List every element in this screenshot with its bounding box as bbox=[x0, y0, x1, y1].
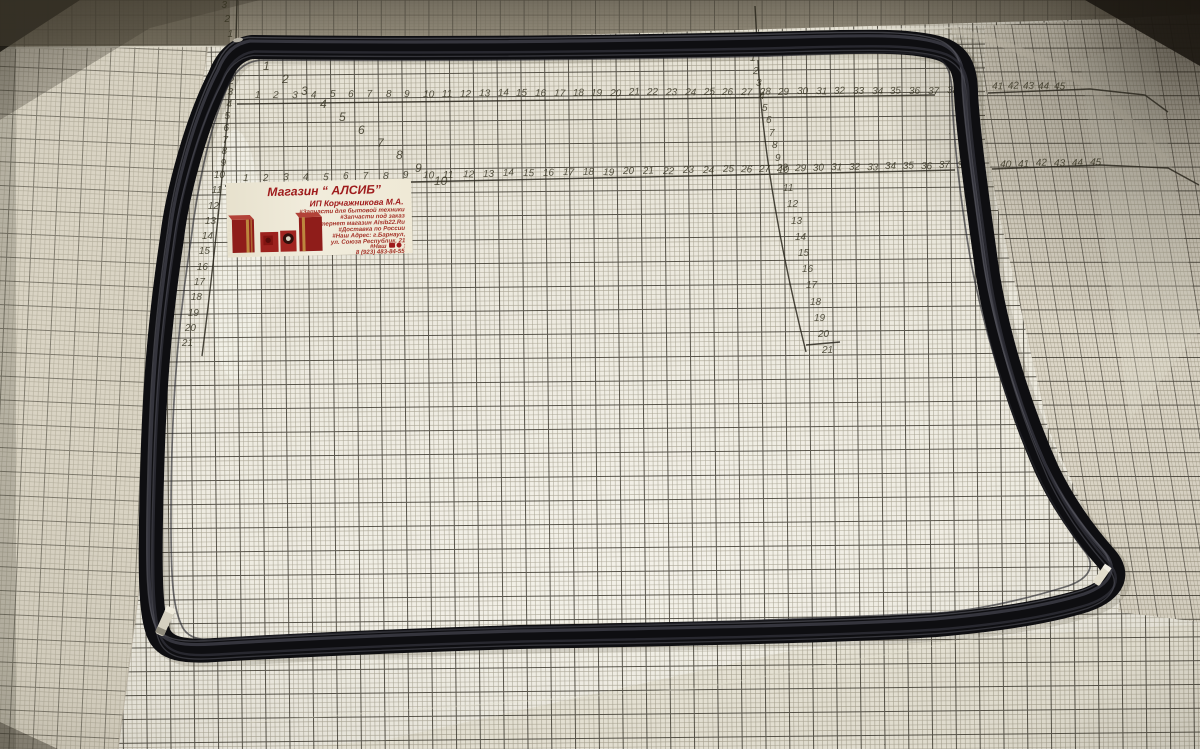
svg-text:13: 13 bbox=[791, 216, 803, 227]
svg-text:3: 3 bbox=[756, 78, 762, 89]
svg-text:6: 6 bbox=[348, 89, 354, 100]
svg-text:18: 18 bbox=[573, 88, 585, 99]
svg-text:37: 37 bbox=[939, 160, 951, 171]
svg-text:41: 41 bbox=[992, 81, 1004, 92]
svg-text:5: 5 bbox=[330, 89, 336, 100]
svg-text:6: 6 bbox=[358, 123, 365, 137]
svg-text:14: 14 bbox=[202, 231, 214, 242]
svg-text:15: 15 bbox=[516, 88, 528, 99]
svg-text:33: 33 bbox=[867, 162, 879, 174]
svg-text:40: 40 bbox=[1000, 159, 1012, 171]
svg-text:18: 18 bbox=[583, 167, 595, 178]
svg-text:5: 5 bbox=[762, 103, 768, 114]
svg-text:25: 25 bbox=[722, 164, 735, 175]
svg-text:19: 19 bbox=[591, 88, 603, 99]
svg-text:10: 10 bbox=[434, 174, 448, 188]
svg-text:2: 2 bbox=[752, 66, 759, 77]
svg-text:13: 13 bbox=[483, 169, 495, 180]
svg-text:11: 11 bbox=[783, 183, 793, 194]
svg-text:9: 9 bbox=[775, 153, 781, 164]
svg-text:8 (923) 483-84-55: 8 (923) 483-84-55 bbox=[356, 248, 406, 256]
svg-text:4: 4 bbox=[759, 91, 765, 102]
svg-text:4: 4 bbox=[311, 90, 317, 101]
svg-text:24: 24 bbox=[702, 165, 715, 176]
svg-text:42: 42 bbox=[1036, 157, 1048, 169]
svg-text:30: 30 bbox=[797, 86, 809, 97]
svg-text:8: 8 bbox=[386, 89, 392, 100]
svg-text:16: 16 bbox=[197, 262, 209, 273]
svg-text:42: 42 bbox=[1008, 80, 1020, 92]
svg-text:19: 19 bbox=[603, 167, 615, 179]
svg-text:16: 16 bbox=[543, 168, 555, 179]
svg-text:14: 14 bbox=[503, 167, 515, 179]
svg-text:22: 22 bbox=[662, 166, 675, 177]
svg-text:2: 2 bbox=[223, 14, 230, 25]
svg-text:9: 9 bbox=[404, 89, 410, 100]
svg-text:7: 7 bbox=[769, 128, 775, 139]
svg-text:16: 16 bbox=[535, 88, 547, 99]
svg-text:8: 8 bbox=[396, 148, 403, 162]
svg-text:12: 12 bbox=[787, 199, 799, 210]
svg-text:29: 29 bbox=[794, 163, 807, 174]
svg-text:10: 10 bbox=[778, 165, 790, 176]
svg-text:14: 14 bbox=[498, 87, 510, 99]
svg-text:23: 23 bbox=[665, 87, 678, 98]
svg-text:45: 45 bbox=[1090, 157, 1102, 168]
svg-text:22: 22 bbox=[646, 87, 659, 98]
svg-text:45: 45 bbox=[1054, 81, 1066, 93]
svg-text:20: 20 bbox=[609, 88, 622, 99]
svg-text:12: 12 bbox=[460, 89, 472, 100]
svg-text:31: 31 bbox=[816, 86, 828, 98]
svg-text:15: 15 bbox=[798, 248, 810, 259]
svg-text:12: 12 bbox=[208, 201, 220, 212]
svg-text:3: 3 bbox=[301, 84, 308, 98]
svg-text:32: 32 bbox=[849, 162, 861, 173]
svg-text:41: 41 bbox=[1018, 159, 1029, 170]
svg-text:19: 19 bbox=[814, 313, 826, 324]
svg-text:36: 36 bbox=[909, 86, 921, 97]
svg-text:37: 37 bbox=[928, 86, 940, 97]
svg-text:9: 9 bbox=[220, 158, 226, 169]
svg-text:21: 21 bbox=[628, 86, 641, 98]
svg-text:35: 35 bbox=[903, 160, 915, 172]
svg-text:20: 20 bbox=[622, 166, 635, 177]
svg-text:29: 29 bbox=[777, 87, 790, 98]
svg-text:6: 6 bbox=[223, 123, 229, 134]
svg-text:18: 18 bbox=[191, 292, 203, 303]
svg-text:43: 43 bbox=[1054, 158, 1066, 169]
svg-text:2: 2 bbox=[272, 90, 279, 101]
svg-text:17: 17 bbox=[554, 88, 566, 100]
svg-text:5: 5 bbox=[339, 110, 346, 124]
svg-text:1: 1 bbox=[243, 173, 249, 184]
svg-text:16: 16 bbox=[802, 264, 814, 275]
svg-text:35: 35 bbox=[890, 85, 902, 97]
svg-text:43: 43 bbox=[1023, 81, 1035, 92]
svg-text:4: 4 bbox=[320, 97, 327, 111]
svg-text:34: 34 bbox=[872, 86, 884, 97]
svg-text:3: 3 bbox=[292, 90, 299, 101]
svg-text:33: 33 bbox=[853, 86, 865, 97]
svg-text:9: 9 bbox=[415, 161, 422, 175]
svg-text:7: 7 bbox=[367, 89, 374, 100]
svg-text:36: 36 bbox=[921, 161, 933, 172]
svg-text:11: 11 bbox=[212, 185, 222, 196]
svg-text:10: 10 bbox=[214, 170, 226, 181]
svg-text:8: 8 bbox=[772, 140, 778, 151]
svg-text:44: 44 bbox=[1072, 158, 1084, 169]
svg-text:27: 27 bbox=[740, 87, 753, 98]
svg-text:1: 1 bbox=[255, 90, 261, 101]
svg-text:3: 3 bbox=[221, 0, 227, 11]
svg-text:14: 14 bbox=[795, 232, 807, 243]
svg-text:2: 2 bbox=[281, 72, 289, 86]
svg-text:30: 30 bbox=[813, 163, 825, 174]
svg-text:34: 34 bbox=[885, 161, 897, 172]
svg-text:3: 3 bbox=[283, 172, 289, 183]
svg-text:12: 12 bbox=[463, 169, 475, 181]
svg-text:27: 27 bbox=[758, 164, 771, 175]
svg-text:17: 17 bbox=[806, 280, 818, 291]
svg-text:31: 31 bbox=[831, 162, 843, 173]
svg-text:8: 8 bbox=[221, 146, 227, 157]
svg-text:25: 25 bbox=[703, 87, 716, 98]
svg-text:6: 6 bbox=[766, 115, 772, 126]
svg-text:17: 17 bbox=[563, 167, 575, 178]
svg-text:19: 19 bbox=[188, 308, 200, 319]
svg-text:13: 13 bbox=[479, 88, 491, 99]
svg-text:5: 5 bbox=[224, 111, 230, 122]
svg-text:21: 21 bbox=[642, 165, 655, 177]
svg-text:21: 21 bbox=[181, 338, 193, 349]
svg-text:17: 17 bbox=[194, 277, 206, 288]
svg-text:15: 15 bbox=[199, 246, 211, 257]
svg-text:18: 18 bbox=[810, 297, 822, 308]
svg-text:7: 7 bbox=[222, 135, 228, 146]
svg-text:10: 10 bbox=[423, 89, 435, 101]
svg-text:15: 15 bbox=[523, 168, 535, 179]
svg-text:23: 23 bbox=[682, 165, 695, 176]
svg-text:24: 24 bbox=[684, 87, 697, 99]
svg-text:26: 26 bbox=[721, 87, 734, 98]
svg-text:20: 20 bbox=[817, 329, 830, 340]
svg-text:21: 21 bbox=[821, 345, 833, 356]
svg-text:44: 44 bbox=[1038, 81, 1050, 92]
svg-text:20: 20 bbox=[184, 323, 197, 334]
svg-text:26: 26 bbox=[740, 164, 753, 176]
svg-text:1: 1 bbox=[227, 29, 233, 40]
svg-text:32: 32 bbox=[834, 86, 846, 97]
svg-text:11: 11 bbox=[442, 89, 453, 100]
svg-text:13: 13 bbox=[205, 216, 217, 227]
